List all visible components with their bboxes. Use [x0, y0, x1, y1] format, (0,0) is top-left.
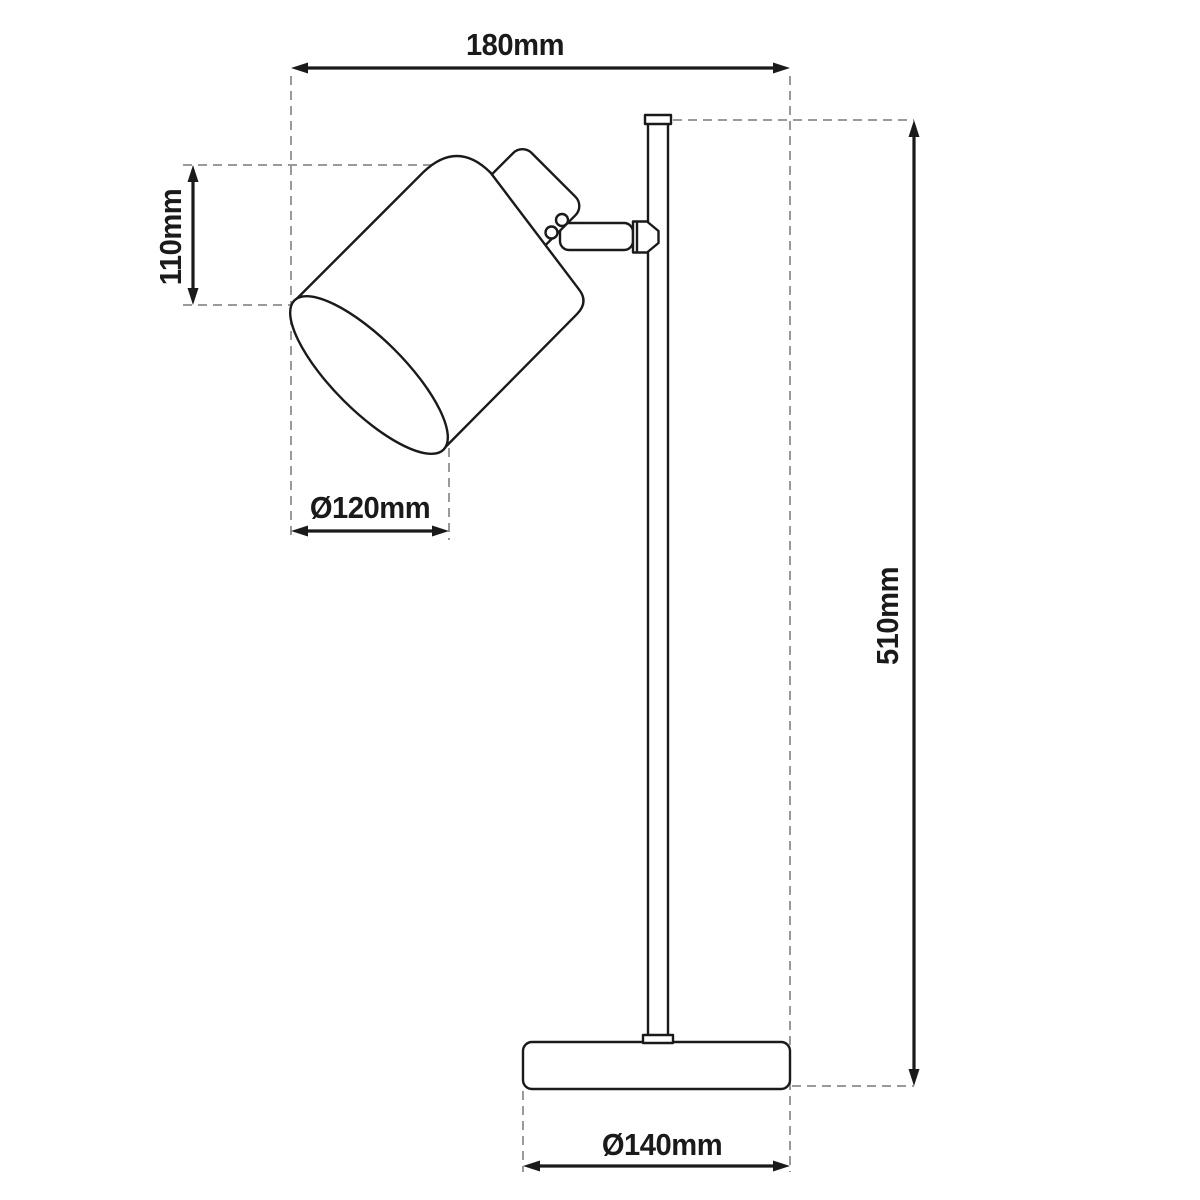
arrowhead-140-right: [773, 1161, 790, 1172]
arrowhead-110-bottom: [188, 288, 199, 305]
arrowhead-510-bottom: [909, 1069, 920, 1086]
arrowhead-120-left: [291, 526, 308, 537]
lamp-figure: [269, 108, 790, 1089]
lamp-pole: [648, 118, 668, 1037]
lamp-dimension-diagram: 180mm 110mm Ø120mm 510mm Ø140mm: [0, 0, 1200, 1200]
lamp-base: [523, 1042, 790, 1089]
pole-top-cap: [645, 115, 671, 124]
dimension-label-base-diameter: Ø140mm: [568, 1127, 756, 1163]
pole-base-collar: [643, 1035, 673, 1043]
arrowhead-510-top: [909, 120, 920, 137]
arrowhead-120-right: [432, 526, 449, 537]
arrowhead-110-top: [188, 165, 199, 182]
lamp-arm: [560, 223, 633, 250]
arrowhead-180-left: [291, 63, 308, 74]
dimension-label-total-height: 510mm: [870, 522, 906, 710]
dimension-label-width-top: 180mm: [421, 27, 609, 63]
pivot-knob-lower: [546, 227, 558, 239]
shade-group: [269, 108, 636, 475]
dimension-label-shade-diameter: Ø120mm: [276, 490, 464, 526]
arrowhead-180-right: [773, 63, 790, 74]
pivot-knob-upper: [556, 214, 568, 226]
dimension-label-shade-height: 110mm: [153, 143, 189, 331]
arrowhead-140-left: [523, 1161, 540, 1172]
